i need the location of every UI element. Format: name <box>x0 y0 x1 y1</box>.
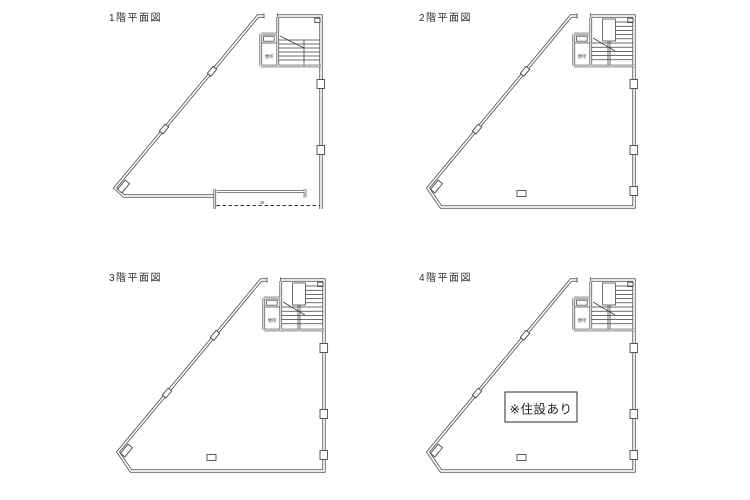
shutter-note: 45 <box>260 200 265 205</box>
floor-plan-sheet: 1階平面図 45 便所 2階平面図 <box>0 0 750 500</box>
toilet-label: 便所 <box>265 53 275 60</box>
floor-plan-3f-drawing: 便所 <box>115 274 335 482</box>
floor-plan-1f: 1階平面図 45 便所 <box>112 10 344 225</box>
floor-plan-1f-drawing: 45 便所 <box>112 10 332 218</box>
toilet-label: 便所 <box>578 53 588 60</box>
toilet-label: 便所 <box>268 317 278 324</box>
floor-plan-2f: 2階平面図 便所 <box>422 10 654 225</box>
floor-plan-4f: 4階平面図 便所 ※住設あり <box>422 270 654 485</box>
floor-plan-4f-drawing: 便所 ※住設あり <box>425 274 645 482</box>
annotation-text: ※住設あり <box>510 402 573 417</box>
floor-plan-3f: 3階平面図 便所 <box>112 270 344 485</box>
floor-plan-2f-drawing: 便所 <box>425 10 645 218</box>
toilet-label: 便所 <box>578 317 588 324</box>
annotation-box: ※住設あり <box>505 392 577 422</box>
